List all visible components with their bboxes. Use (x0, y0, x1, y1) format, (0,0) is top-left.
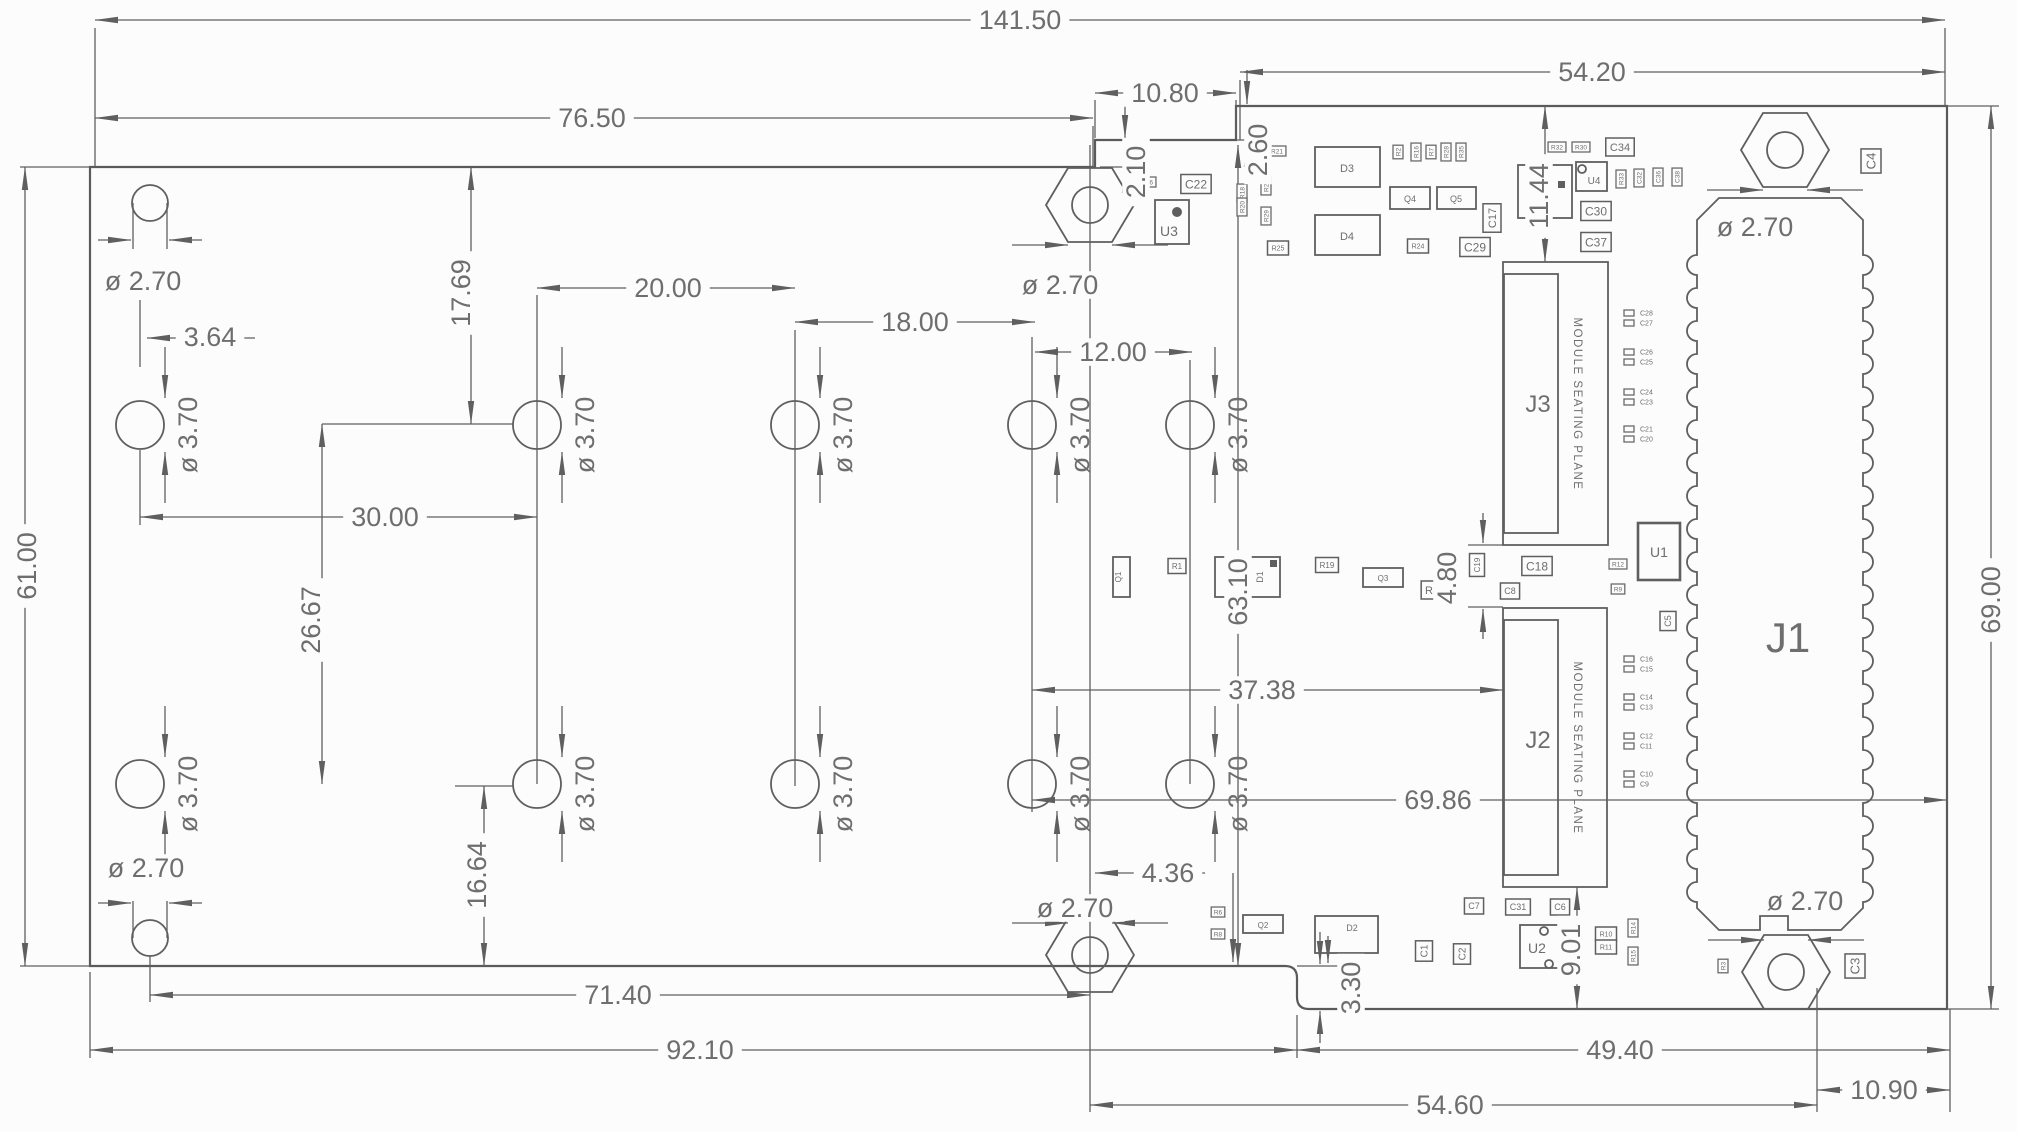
ref-c6: C6 (1550, 899, 1569, 915)
tiny-label: R33 (1618, 173, 1625, 185)
hole-3_70-r0c4: ø 3.70 (1166, 347, 1253, 503)
ref-label: R11 (1600, 945, 1612, 952)
ref-c37: C37 (1581, 233, 1611, 252)
cap-label-bottom: C11 (1640, 744, 1652, 751)
ref-label: C19 (1473, 557, 1482, 572)
tiny-r8: R8 (1211, 929, 1225, 939)
cap-square (1624, 359, 1634, 365)
tiny-r20: R20 (1237, 198, 1247, 216)
hole-3_70-r0c1: ø 3.70 (513, 347, 600, 503)
hole-3_70-r1c0: ø 3.70 (116, 706, 203, 862)
tiny-label: R2 (1395, 147, 1402, 156)
dim-pitch-20: 20.00 (626, 273, 710, 303)
dia-label-bottom-right: ø 2.70 (1756, 886, 1855, 916)
ref-c22: C22 (1181, 175, 1211, 194)
cap-label-bottom: C27 (1640, 321, 1653, 328)
dim-j2-offset: 37.38 (1220, 675, 1304, 705)
ref-label: R24 (1412, 244, 1425, 251)
tiny-label: R20 (1239, 201, 1246, 213)
ref-c29: C29 (1460, 238, 1490, 257)
tiny-r15: R15 (1628, 947, 1638, 965)
part-label: Q4 (1404, 194, 1416, 204)
dia-label-bottom-middle: ø 2.70 (1026, 893, 1125, 923)
connector-outline (1503, 608, 1607, 887)
ref-c17: C17 (1483, 204, 1501, 232)
cap-pair-1: C26C25 (1624, 349, 1653, 367)
dim-bottom-step: 3.30 (1336, 954, 1366, 1022)
hole-3_70-r1c4: ø 3.70 (1166, 706, 1253, 862)
ref-label: C4 (1864, 153, 1879, 170)
tiny-label: R8 (1214, 931, 1223, 938)
dim-right-top-width: 54.20 (1550, 57, 1634, 87)
hole-dia-label: ø 3.70 (828, 397, 858, 474)
tiny-r9: R9 (1611, 584, 1625, 594)
dim-l1-offset: 11.44 (1524, 163, 1554, 229)
tiny-label: R32 (1551, 144, 1563, 151)
dim-connector-gap: 4.80 (1432, 552, 1462, 605)
cap-square (1624, 771, 1634, 777)
cap-label-bottom: C15 (1640, 667, 1653, 674)
cap-pair-3: C21C20 (1624, 426, 1653, 444)
part-u3: U3 (1155, 200, 1189, 244)
ref-label: C22 (1185, 177, 1207, 191)
dia-label-bottom-left: ø 2.70 (97, 853, 196, 883)
cap-label-top: C12 (1640, 734, 1653, 741)
dim-pitch-12: 12.00 (1071, 337, 1155, 367)
ref-c4: C4 (1861, 149, 1881, 173)
dia-label-bottom-middle: ø 2.70 (1037, 893, 1114, 923)
dim-bottom-49: 49.40 (1578, 1035, 1662, 1065)
ref-label: C5 (1663, 615, 1673, 627)
dim-left-height: 61.00 (12, 524, 42, 608)
dim-mid-height: 63.10 (1223, 550, 1253, 634)
ref-label: C8 (1504, 586, 1516, 596)
seating-plane-label-group: MODULE SEATING PLANE (1571, 318, 1583, 491)
dim-row-spacing: 26.67 (296, 578, 326, 662)
hole-label-group: ø 3.70 (1065, 397, 1095, 474)
part-label: U1 (1650, 544, 1668, 560)
ref-label: R25 (1272, 246, 1285, 253)
dim-top-row-offset: 17.69 (446, 259, 476, 327)
tiny-r28: R28 (1441, 143, 1451, 161)
dim-connector-gap: 4.80 (1432, 544, 1462, 612)
pin1-ring (1578, 165, 1586, 173)
dim-j2-offset: 37.38 (1228, 675, 1296, 705)
ref-label: C34 (1610, 142, 1630, 154)
dim-pitch-18: 18.00 (881, 307, 949, 337)
hole-3_70-r0c2: ø 3.70 (771, 347, 858, 503)
cap-square (1624, 781, 1634, 787)
cap-label-bottom: C13 (1640, 705, 1653, 712)
tiny-r12: R12 (1609, 559, 1627, 569)
ref-label: C31 (1510, 902, 1527, 912)
dim-bottom-step: 3.30 (1336, 962, 1366, 1015)
dim-hex-offset: 4.36 (1142, 858, 1195, 888)
dim-top-step: 2.60 (1243, 124, 1273, 177)
pcb-dimension-drawing: ø 3.70ø 3.70ø 3.70ø 3.70ø 3.70ø 3.70ø 3.… (0, 0, 2017, 1132)
hole-label-group: ø 3.70 (173, 397, 203, 474)
tiny-c38: C38 (1672, 168, 1682, 186)
hole-dia-label: ø 3.70 (570, 756, 600, 833)
hole-label-group: ø 3.70 (1065, 756, 1095, 833)
part-label: D3 (1340, 163, 1354, 175)
ref-c2: C2 (1454, 944, 1471, 964)
dim-u2-offset: 9.01 (1556, 924, 1586, 977)
hole-dia-label: ø 3.70 (1065, 397, 1095, 474)
cap-label-bottom: C25 (1640, 360, 1653, 367)
dim-pitch-30: 30.00 (351, 502, 419, 532)
cap-square (1624, 389, 1634, 395)
dim-right-top-width: 54.20 (1558, 57, 1626, 87)
cap-label-top: C24 (1640, 390, 1653, 397)
ref-c1: C1 (1416, 941, 1433, 961)
cap-label-bottom: C9 (1640, 782, 1649, 789)
seating-plane-label: MODULE SEATING PLANE (1571, 662, 1583, 835)
dim-row-spacing: 26.67 (296, 586, 326, 654)
dim-hole-a-offset: 3.64 (184, 322, 237, 352)
cap-label-top: C26 (1640, 350, 1653, 357)
dia-label-top-left: ø 2.70 (94, 266, 193, 296)
standoff-1 (1707, 113, 1863, 190)
dim-hole-a-offset: 3.64 (176, 322, 244, 352)
dim-bottom-92: 92.10 (666, 1035, 734, 1065)
ref-c30: C30 (1581, 202, 1611, 221)
ref-r10: R10 (1595, 927, 1616, 941)
ref-c3: C3 (1845, 954, 1865, 978)
ref-r11: R11 (1595, 940, 1616, 954)
cap-pair-6: C12C11 (1624, 733, 1653, 751)
ref-label: C3 (1848, 958, 1863, 975)
part-outline (1315, 916, 1378, 953)
dim-bottom-row-offset: 16.64 (462, 833, 492, 917)
dim-left-height: 61.00 (12, 532, 42, 600)
cap-square (1624, 426, 1634, 432)
cap-square (1624, 310, 1634, 316)
tiny-label: C36 (1655, 171, 1662, 183)
part-label: D4 (1340, 231, 1354, 243)
tiny-label: R16 (1413, 146, 1420, 158)
pin1-ring (1540, 927, 1548, 935)
extension-lines (20, 28, 1999, 1112)
j1-module-outline (1687, 198, 1873, 930)
part-d3: D3 (1315, 147, 1380, 187)
dim-pitch-30: 30.00 (343, 502, 427, 532)
dim-notch-width: 10.80 (1131, 78, 1199, 108)
cap-square (1624, 694, 1634, 700)
tiny-label: C32 (1636, 172, 1643, 184)
dim-u2-offset: 9.01 (1556, 916, 1586, 984)
dia-label-top-middle: ø 2.70 (1011, 270, 1110, 300)
cap-label-top: C28 (1640, 311, 1653, 318)
cap-square (1624, 733, 1634, 739)
dim-pitch-20: 20.00 (634, 273, 702, 303)
hole-dia-label: ø 3.70 (1065, 756, 1095, 833)
dimension-labels: 141.5076.5054.2010.802.102.6061.0069.003… (12, 5, 2006, 1120)
dim-top-row-offset: 17.69 (446, 251, 476, 335)
part-d2: D2 (1315, 916, 1378, 953)
tiny-r30: R30 (1572, 142, 1590, 152)
cap-pair-7: C10C9 (1624, 771, 1653, 789)
dim-bottom-71: 71.40 (576, 980, 660, 1010)
pin1-ring (1545, 960, 1553, 968)
part-label: Q3 (1378, 574, 1389, 583)
dim-bottom-54: 54.60 (1408, 1090, 1492, 1120)
ref-c34: C34 (1606, 138, 1634, 156)
dim-left-top-width: 76.50 (550, 103, 634, 133)
dim-left-top-width: 76.50 (558, 103, 626, 133)
dim-notch-width: 10.80 (1123, 78, 1207, 108)
dim-pitch-12: 12.00 (1079, 337, 1147, 367)
cap-square (1624, 743, 1634, 749)
hole-label-group: ø 3.70 (1223, 397, 1253, 474)
cap-square (1624, 399, 1634, 405)
ref-label: C37 (1585, 235, 1607, 249)
pcb-edge (90, 106, 1947, 1009)
ref-c19: C19 (1470, 554, 1485, 577)
dim-top-step: 2.60 (1243, 116, 1273, 184)
ref-label: R10 (1600, 932, 1613, 939)
cap-square (1624, 656, 1634, 662)
tiny-r2: R2 (1393, 145, 1403, 159)
tiny-r6: R6 (1211, 907, 1225, 917)
ref-c31: C31 (1506, 899, 1531, 915)
part-q1: Q1 (1113, 557, 1130, 597)
dim-total-width: 141.50 (971, 5, 1070, 35)
hole-label-group: ø 3.70 (828, 756, 858, 833)
ref-label: R1 (1172, 562, 1183, 571)
tiny-r35: R35 (1456, 143, 1466, 161)
hole-label-group: ø 3.70 (570, 756, 600, 833)
part-q5: Q5 (1437, 187, 1476, 209)
cap-label-top: C21 (1640, 427, 1653, 434)
cap-square (1624, 320, 1634, 326)
seating-plane-label: MODULE SEATING PLANE (1571, 318, 1583, 491)
ref-label: C29 (1464, 240, 1486, 254)
ref-r24: R24 (1407, 239, 1428, 253)
cap-pair-2: C24C23 (1624, 389, 1653, 407)
dia-label-top-right: ø 2.70 (1706, 212, 1805, 242)
part-label: Q2 (1258, 921, 1269, 930)
cap-label-top: C16 (1640, 657, 1653, 664)
standoff-hole (1767, 132, 1803, 168)
dim-bottom-10: 10.90 (1842, 1075, 1926, 1105)
pin1-square (1558, 181, 1565, 188)
connector-label: J3 (1525, 391, 1550, 418)
tiny-label: R7 (1428, 147, 1435, 156)
tiny-r32: R32 (1548, 142, 1566, 152)
dim-right-height: 69.00 (1976, 558, 2006, 642)
hole-label-group: ø 3.70 (173, 756, 203, 833)
tiny-label: R18 (1239, 187, 1246, 199)
dim-connector-span: 69.86 (1396, 785, 1480, 815)
dia-label-top-left: ø 2.70 (105, 266, 182, 296)
cap-square (1624, 704, 1634, 710)
hole-dia-label: ø 3.70 (1223, 756, 1253, 833)
part-label: D1 (1255, 571, 1265, 583)
ref-label: C30 (1585, 204, 1607, 218)
corner-hole-1 (132, 920, 168, 956)
hole-circle (116, 401, 164, 449)
tiny-c36: C36 (1653, 168, 1663, 186)
tiny-label: R15 (1630, 950, 1637, 962)
dim-pitch-18: 18.00 (873, 307, 957, 337)
seating-plane-label-group: MODULE SEATING PLANE (1571, 662, 1583, 835)
part-label: D2 (1346, 923, 1358, 933)
hole-3_70-r1c3: ø 3.70 (1008, 706, 1095, 862)
dim-bottom-row-offset: 16.64 (462, 841, 492, 909)
board-outline (90, 106, 1947, 1009)
tiny-r14: R14 (1628, 919, 1638, 937)
cap-square (1624, 436, 1634, 442)
ref-r1: R1 (1168, 559, 1186, 574)
connector-j2: J2MODULE SEATING PLANE (1503, 608, 1607, 887)
ref-label: C2 (1458, 947, 1469, 960)
part-label: U3 (1160, 223, 1178, 239)
dim-hex-offset: 4.36 (1134, 858, 1202, 888)
ref-label: C7 (1468, 901, 1480, 911)
tiny-label: R28 (1443, 146, 1450, 158)
dim-bottom-92: 92.10 (658, 1035, 742, 1065)
part-u1: U1 (1638, 523, 1680, 580)
part-q4: Q4 (1390, 187, 1430, 209)
dim-bottom-10: 10.90 (1850, 1075, 1918, 1105)
ref-c18: C18 (1522, 557, 1552, 576)
part-label: U2 (1528, 940, 1546, 956)
standoff-3 (1708, 935, 1864, 1009)
dia-label-top-middle: ø 2.70 (1022, 270, 1099, 300)
connectors: J1J3MODULE SEATING PLANEJ2MODULE SEATING… (1503, 198, 1873, 930)
hole-label-group: ø 3.70 (828, 397, 858, 474)
dim-bottom-54: 54.60 (1416, 1090, 1484, 1120)
part-q2: Q2 (1243, 915, 1283, 933)
cap-pair-4: C16C15 (1624, 656, 1653, 674)
hole-3_70-r1c1: ø 3.70 (513, 706, 600, 862)
ref-label: C1 (1420, 944, 1431, 957)
connector-j3: J3MODULE SEATING PLANE (1503, 262, 1608, 545)
dim-bottom-49: 49.40 (1586, 1035, 1654, 1065)
dim-notch-depth: 2.10 (1121, 138, 1151, 206)
hole-dia-label: ø 3.70 (173, 756, 203, 833)
tiny-label: R14 (1630, 922, 1637, 934)
cap-label-top: C10 (1640, 772, 1653, 779)
tiny-label: R12 (1612, 561, 1624, 568)
ref-r19: R19 (1316, 558, 1339, 573)
part-label: U4 (1588, 176, 1601, 187)
cap-label-bottom: C20 (1640, 437, 1653, 444)
hole-3_70-r0c0: ø 3.70 (116, 347, 203, 503)
dim-total-width: 141.50 (979, 5, 1062, 35)
tiny-label: R9 (1614, 586, 1623, 593)
tiny-label: R3 (1720, 961, 1727, 970)
cap-label-top: C14 (1640, 695, 1653, 702)
tiny-r16: R16 (1411, 143, 1421, 161)
hole-3_70-r1c2: ø 3.70 (771, 706, 858, 862)
tiny-label: R29 (1263, 210, 1270, 222)
j1-label: J1 (1766, 614, 1810, 661)
cap-pair-0: C28C27 (1624, 310, 1653, 328)
dim-mid-height: 63.10 (1223, 558, 1253, 626)
cap-label-bottom: C23 (1640, 400, 1653, 407)
tiny-r7: R7 (1426, 145, 1436, 159)
hole-label-group: ø 3.70 (1223, 756, 1253, 833)
hole-dia-label: ø 3.70 (570, 397, 600, 474)
pin1-square (1270, 560, 1277, 567)
cap-pair-5: C14C13 (1624, 694, 1653, 712)
dim-l1-offset: 11.44 (1524, 154, 1554, 238)
part-label: Q1 (1114, 571, 1123, 582)
dim-bottom-71: 71.40 (584, 980, 652, 1010)
tiny-label: R6 (1214, 909, 1223, 916)
drawing-surface: ø 3.70ø 3.70ø 3.70ø 3.70ø 3.70ø 3.70ø 3.… (0, 0, 2017, 1132)
part-d4: D4 (1315, 215, 1380, 255)
tiny-r29: R29 (1261, 207, 1271, 225)
tiny-label: R30 (1575, 144, 1587, 151)
hole-3_70-r0c3: ø 3.70 (1008, 347, 1095, 503)
tiny-c32: C32 (1634, 169, 1644, 187)
tiny-label: C38 (1674, 171, 1681, 183)
ref-c8: C8 (1500, 583, 1519, 599)
standoff-hole (1768, 954, 1804, 990)
dim-connector-span: 69.86 (1404, 785, 1472, 815)
part-label: Q5 (1450, 194, 1462, 204)
hole-dia-label: ø 3.70 (1223, 397, 1253, 474)
ref-c5: C5 (1660, 611, 1676, 630)
hole-circle (116, 760, 164, 808)
hole-dia-label: ø 3.70 (173, 397, 203, 474)
ref-label: C17 (1487, 208, 1499, 228)
connector-outline (1503, 262, 1608, 545)
dimension-lines (25, 20, 1991, 1105)
pin1-dot (1172, 207, 1182, 217)
ref-c7: C7 (1464, 898, 1483, 914)
hole-dia-label: ø 3.70 (828, 756, 858, 833)
part-u4: U4 (1576, 162, 1607, 191)
ref-label: C18 (1526, 559, 1548, 573)
cap-square (1624, 349, 1634, 355)
ref-r25: R25 (1267, 241, 1288, 255)
cap-square (1624, 666, 1634, 672)
dia-label-bottom-left: ø 2.70 (108, 853, 185, 883)
tiny-r33: R33 (1616, 170, 1626, 188)
dia-label-top-right: ø 2.70 (1717, 212, 1794, 242)
dim-notch-depth: 2.10 (1121, 146, 1151, 199)
dim-right-height: 69.00 (1976, 566, 2006, 634)
tiny-r3: R3 (1718, 959, 1728, 973)
hole-label-group: ø 3.70 (570, 397, 600, 474)
tiny-label: R35 (1458, 146, 1465, 158)
ref-label: C6 (1554, 902, 1566, 912)
ref-label: R19 (1320, 561, 1335, 570)
corner-hole-0 (132, 185, 168, 221)
standoff-hex (1741, 113, 1829, 187)
dia-label-bottom-right: ø 2.70 (1767, 886, 1844, 916)
connector-label: J2 (1525, 727, 1550, 754)
part-q3: Q3 (1363, 568, 1403, 587)
